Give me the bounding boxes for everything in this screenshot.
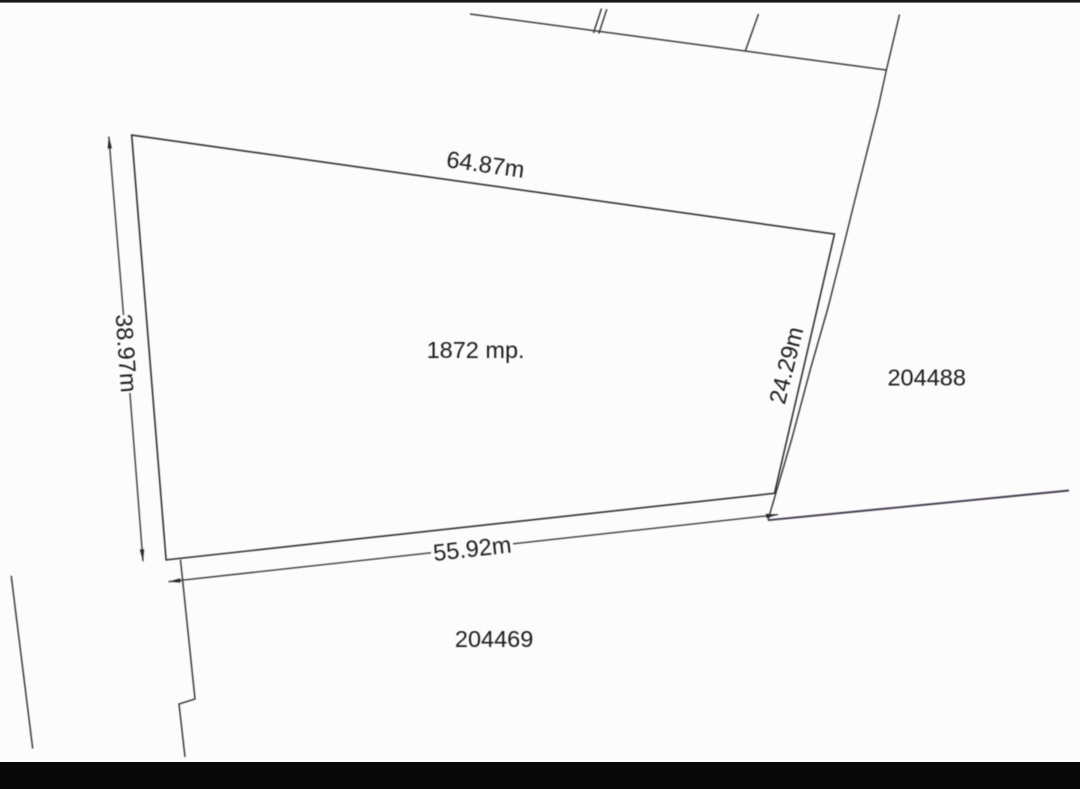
svg-text:204488: 204488 bbox=[887, 364, 965, 390]
svg-text:204469: 204469 bbox=[455, 626, 533, 652]
svg-text:1872 mp.: 1872 mp. bbox=[427, 337, 525, 363]
svg-text:38.97m: 38.97m bbox=[111, 313, 142, 393]
